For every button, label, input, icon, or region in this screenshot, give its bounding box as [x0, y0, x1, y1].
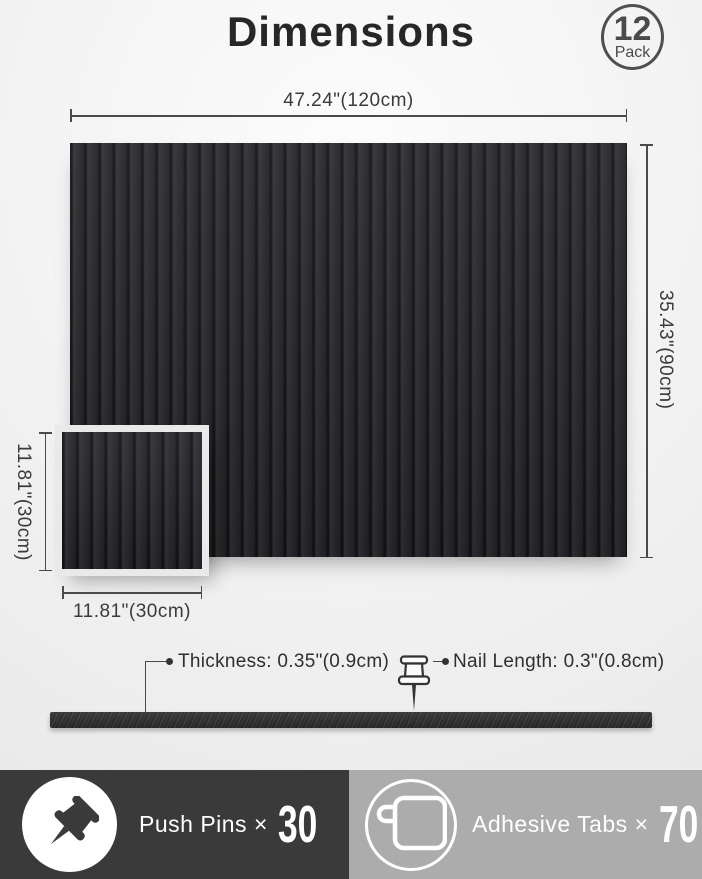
- thickness-leader-vertical: [145, 661, 147, 712]
- adhesive-tab-icon: [375, 794, 447, 856]
- page-title: Dimensions: [0, 8, 702, 56]
- push-pins-count: 30: [278, 799, 317, 851]
- push-pins-label: Push Pins ×: [139, 811, 268, 838]
- adhesive-tabs-count: 70: [659, 799, 698, 851]
- small-acoustic-panel: [62, 432, 202, 569]
- large-panel-height-label: 35.43"(90cm): [652, 143, 678, 557]
- push-pin-side-icon: [396, 655, 432, 713]
- thickness-leader-horizontal: [145, 661, 168, 663]
- large-panel-width-label: 47.24"(120cm): [70, 90, 627, 112]
- small-panel-width-label: 11.81"(30cm): [42, 601, 222, 623]
- pack-count-value: 12: [614, 14, 652, 44]
- push-pin-icon: [41, 796, 99, 854]
- large-panel-width-dimension-line: [70, 115, 627, 117]
- thickness-leader-dot: [166, 658, 173, 665]
- nail-length-label: Nail Length: 0.3"(0.8cm): [453, 651, 664, 673]
- small-panel-height-dimension-line: [45, 432, 47, 571]
- small-panel-height-label: 11.81"(30cm): [10, 432, 36, 572]
- pack-count-badge: 12 Pack: [601, 4, 664, 70]
- large-panel-height-dimension-line: [646, 144, 648, 558]
- panel-side-view-strip: [50, 712, 652, 728]
- pack-count-label: Pack: [615, 45, 651, 61]
- adhesive-tab-icon-circle: [365, 779, 457, 871]
- thickness-label: Thickness: 0.35"(0.9cm): [178, 651, 389, 673]
- product-dimensions-infographic: Dimensions 12 Pack 47.24"(120cm) 35.43"(…: [0, 0, 702, 879]
- small-panel-width-dimension-line: [62, 592, 202, 594]
- push-pin-icon-circle: [22, 777, 117, 872]
- nail-leader-dot: [442, 658, 449, 665]
- adhesive-tabs-section: Adhesive Tabs × 70: [349, 770, 702, 879]
- adhesive-tabs-label: Adhesive Tabs ×: [472, 811, 649, 838]
- push-pins-section: Push Pins × 30: [0, 770, 349, 879]
